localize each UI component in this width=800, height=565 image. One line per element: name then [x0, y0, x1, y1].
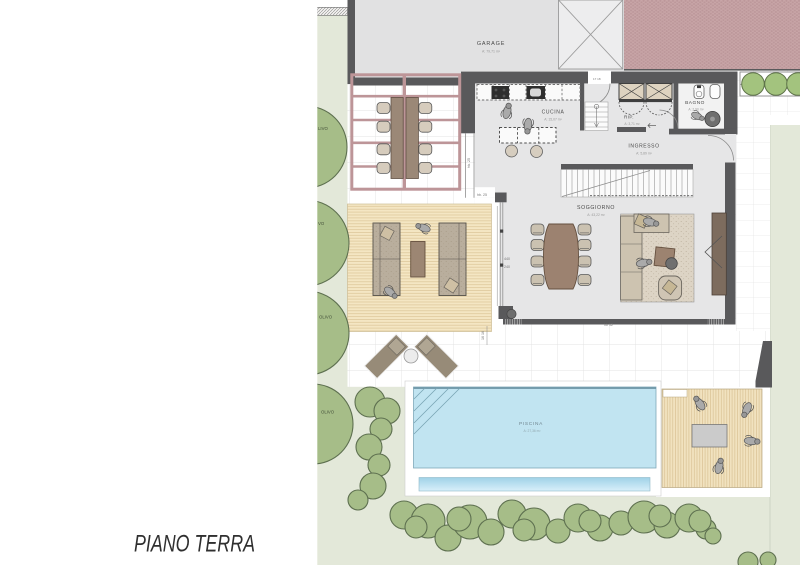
svg-text:BAGNO: BAGNO [685, 100, 705, 106]
svg-text:RIP.: RIP. [624, 115, 634, 120]
svg-text:VO: VO [318, 221, 325, 226]
svg-text:A: 3,71 m²: A: 3,71 m² [624, 122, 640, 126]
svg-text:OLIVO: OLIVO [319, 315, 333, 320]
svg-text:240: 240 [504, 265, 510, 269]
svg-text:440: 440 [504, 257, 510, 261]
svg-text:A: 27,36 m²: A: 27,36 m² [523, 429, 541, 433]
svg-text:LIVO: LIVO [318, 126, 328, 131]
svg-text:A: 2,90 m²: A: 2,90 m² [688, 108, 704, 112]
svg-text:INGRESSO: INGRESSO [628, 144, 659, 150]
svg-text:A: 15,07 m²: A: 15,07 m² [544, 118, 562, 122]
svg-text:hb. 25: hb. 25 [477, 193, 487, 197]
svg-text:hb 12: hb 12 [604, 323, 613, 327]
svg-text:PISCINA: PISCINA [519, 421, 543, 427]
svg-text:GARAGE: GARAGE [477, 41, 505, 47]
svg-text:SOGGIORNO: SOGGIORNO [577, 205, 615, 211]
svg-text:PIANO TERRA: PIANO TERRA [134, 531, 255, 558]
svg-text:A: 79,71 m²: A: 79,71 m² [482, 50, 501, 54]
svg-text:A: 43,22 m²: A: 43,22 m² [587, 213, 605, 217]
svg-text:A: 5,89 m²: A: 5,89 m² [636, 152, 653, 156]
svg-text:CUCINA: CUCINA [542, 110, 565, 116]
svg-text:OLIVO: OLIVO [321, 410, 335, 415]
svg-text:16 16: 16 16 [481, 331, 485, 340]
svg-text:17 18: 17 18 [593, 77, 601, 81]
svg-text:hb. 25: hb. 25 [467, 158, 471, 168]
